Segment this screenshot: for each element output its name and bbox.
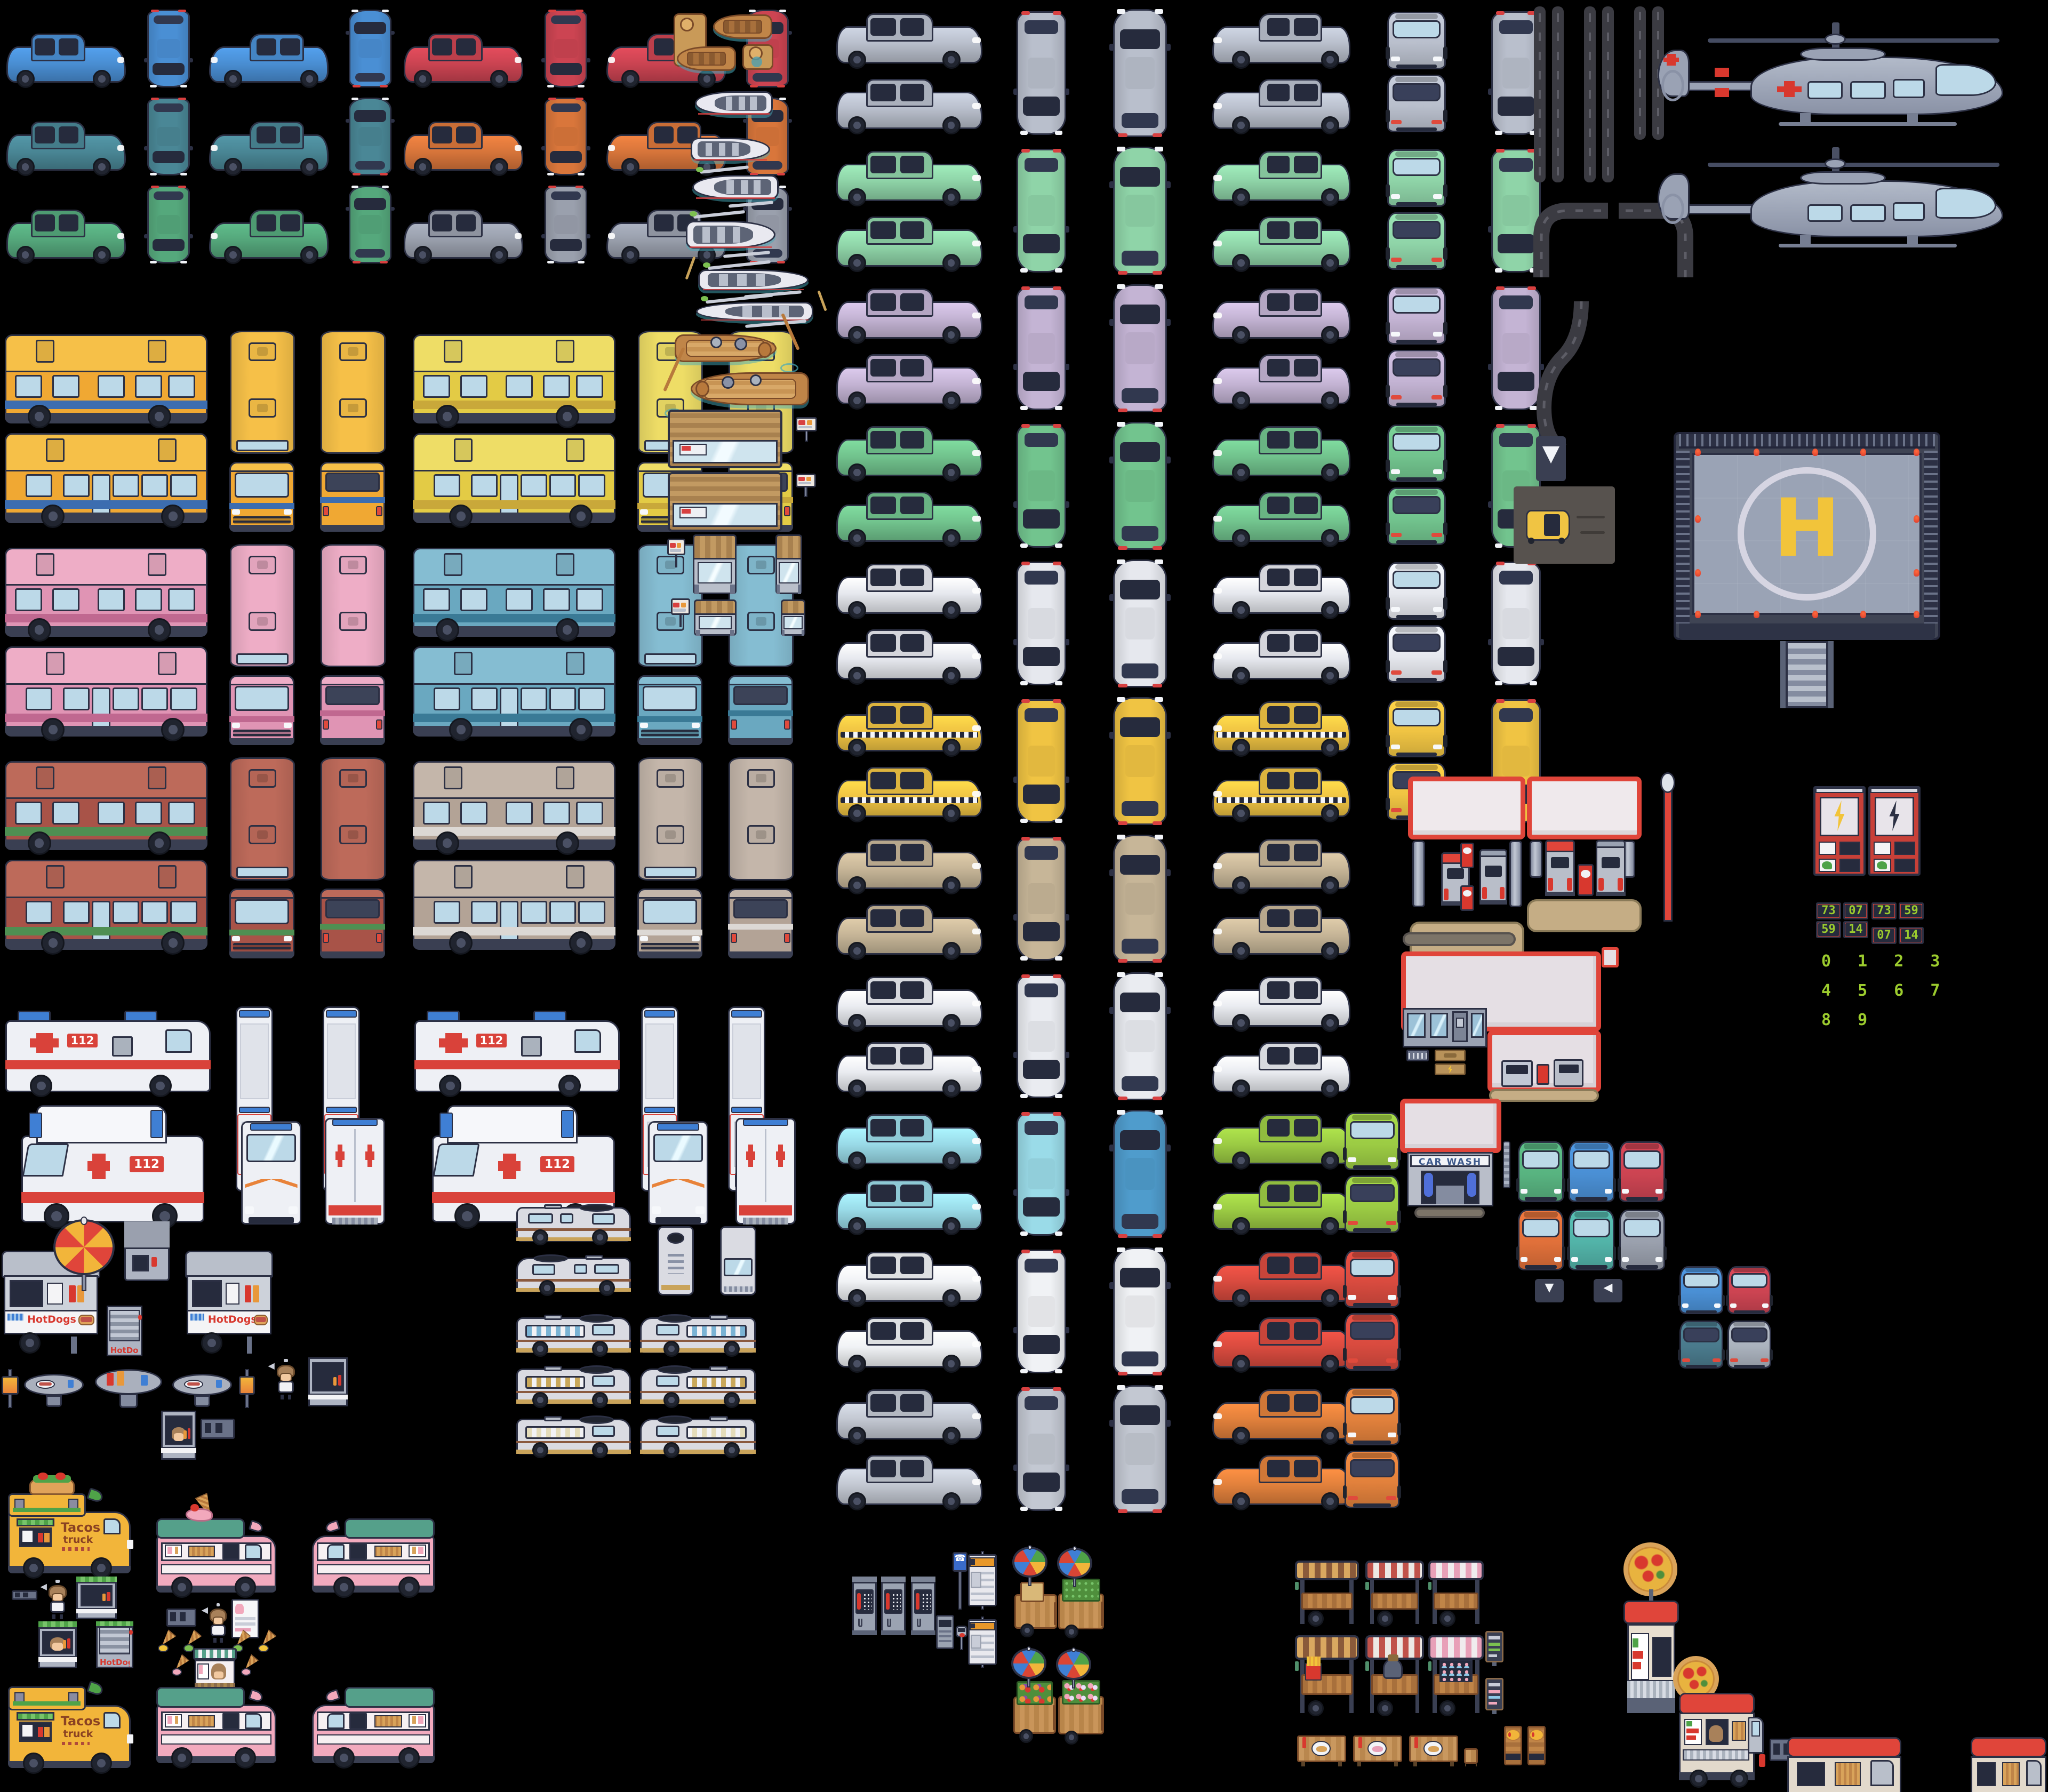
ambulance-front-1 <box>240 1119 302 1227</box>
bus-tan-top-rear <box>726 756 796 882</box>
market-umbrella-2 <box>1057 1548 1092 1587</box>
stand-lamp-2 <box>239 1369 255 1408</box>
ambulance-side-1: 112 <box>5 1005 211 1097</box>
car-white-iso-right-2 <box>1211 629 1352 684</box>
cone-yellow-2 <box>258 1631 277 1653</box>
ambulance-iso-1: 112 <box>21 1100 208 1228</box>
bus-blue-side-left <box>411 546 618 641</box>
door-mat-1 <box>1435 1050 1466 1061</box>
gas-canopy-2 <box>1527 777 1642 839</box>
car-white-iso-left-2 <box>835 629 984 684</box>
bus-brown-top-front <box>228 756 297 882</box>
bus-brown-side-left <box>3 759 210 854</box>
icecream-truck-right <box>309 1511 435 1597</box>
car-sport-red-top-a <box>1013 1247 1069 1376</box>
ambulance-112-text: 112 <box>67 1034 98 1047</box>
icecream-truck-right-2 <box>309 1680 435 1767</box>
car-green-back-top <box>1387 486 1446 546</box>
carwash-car-grid-cell-0-2 <box>1619 1140 1666 1203</box>
carwash-car-grid-cell-0-0 <box>1517 1140 1564 1203</box>
cone-yellow-1 <box>158 1631 177 1653</box>
white-boat-right <box>689 134 772 164</box>
carwash-car-grid-cell-0-1 <box>1568 1140 1615 1203</box>
cone-pink-2 <box>241 1655 259 1677</box>
taco-truck-text-line1: Tacos <box>61 1716 100 1727</box>
compact-car-teal-top-1 <box>144 96 193 177</box>
stall-tan-fries <box>1295 1635 1359 1716</box>
wood-raft-right <box>712 13 773 40</box>
car-sport-red-iso-right-2 <box>1211 1317 1352 1372</box>
compact-car-gray-top-1 <box>541 184 590 265</box>
car-silver-iso-left-1 <box>835 13 984 68</box>
arrow-icon: ▼ <box>1536 440 1566 466</box>
car-cyan-lime-iso-left-2 <box>835 1180 984 1234</box>
compact-car-gray-side-left <box>403 210 524 263</box>
car-mint-iso-left-1 <box>835 151 984 205</box>
taco-truck: Tacostruck <box>8 1488 133 1578</box>
compact-car-teal-top-2 <box>346 96 395 177</box>
price-panel-3: 73 <box>1871 902 1897 919</box>
cone-pink-1 <box>172 1655 190 1677</box>
door-mat-2 <box>1435 1063 1466 1075</box>
bus-stop-sign-2 <box>795 474 817 497</box>
arrow-icon: ◀ <box>1594 1281 1622 1294</box>
car-white-iso-right-1 <box>1211 564 1352 618</box>
grid-arrow-left: ◀ <box>1594 1279 1622 1302</box>
car-tan-iso-left-1 <box>835 839 984 893</box>
price-panel-1: 73 <box>1816 902 1841 919</box>
bus-school-orange-back <box>318 460 387 534</box>
bus-tan-side-right <box>411 858 618 954</box>
car-lavender-iso-right-1 <box>1211 289 1352 343</box>
car-silver-top-b <box>1109 6 1171 140</box>
carwash-car-grid-cell-1-1 <box>1568 1209 1615 1271</box>
hotdogs-shutter-text: HotDogs <box>110 1346 139 1355</box>
stall-pink-empty <box>1428 1561 1484 1627</box>
car-silver-orange-front-top <box>1344 1387 1400 1446</box>
car-sport-red-iso-left-2 <box>835 1317 984 1372</box>
menu-board-2 <box>1485 1678 1504 1714</box>
car-mint-top-a <box>1013 146 1069 275</box>
bus-shelter-side-1 <box>691 534 739 594</box>
icecream-truck-2 <box>156 1680 279 1767</box>
car-silver-iso-left-2 <box>835 79 984 133</box>
car-white-back-top <box>1387 624 1446 684</box>
carwash-car-grid-b-cell-1-0 <box>1679 1319 1724 1370</box>
car-tan-iso-right-1 <box>1211 839 1352 893</box>
bus-brown-front <box>228 887 296 961</box>
fuel-price-value: 73 <box>1816 904 1841 917</box>
notice-board-2 <box>968 1619 997 1665</box>
arrow-icon: ▼ <box>1535 1281 1564 1294</box>
bus-stop-sign-3 <box>667 539 686 567</box>
carwash-brush-strip <box>1503 1141 1510 1188</box>
bus-blue-front <box>636 674 704 747</box>
car-sport-red-iso-left-1 <box>835 1252 984 1306</box>
taco-vendor-walk: ◀ <box>42 1580 74 1619</box>
icecream-vendor-walk: ◀ <box>203 1603 234 1643</box>
car-green-front-top <box>1387 423 1446 483</box>
car-taxi-front-top <box>1387 699 1446 758</box>
stall-red-pot <box>1365 1635 1424 1716</box>
rv-plain-left <box>516 1203 631 1244</box>
gas-pillar-3 <box>1530 841 1542 878</box>
bus-shelter-front-1 <box>692 599 738 636</box>
wood-table-2 <box>1352 1735 1403 1766</box>
car-cyan-lime-top-b <box>1109 1107 1171 1241</box>
car-lavender-top-b <box>1109 282 1171 415</box>
car-lavender-top-a <box>1013 284 1069 413</box>
bus-yellow-side-left <box>411 332 618 427</box>
bistro-table-2 <box>92 1366 165 1408</box>
white-boat-oars-l <box>691 172 780 203</box>
helicopter-medical <box>1658 22 2014 135</box>
bus-pink-side-right <box>3 644 210 740</box>
car-on-road-tile <box>1514 486 1615 564</box>
hotdogs-banner-text: HotDogs <box>27 1314 76 1325</box>
track-straight-2 <box>1582 6 1616 182</box>
walk-arrow-icon: ◀ <box>202 1605 208 1615</box>
taco-truck-text-line1: Tacos <box>61 1522 100 1534</box>
fuel-pump-awning-2 <box>1595 840 1627 896</box>
car-mint-front-top <box>1387 148 1446 208</box>
pizza-food-truck <box>1677 1677 1765 1787</box>
bus-stop-sign-1 <box>795 417 818 442</box>
icecream-counter <box>166 1609 196 1627</box>
price-panel-8: 14 <box>1899 927 1924 944</box>
compact-car-red-top-1 <box>541 8 590 89</box>
pump-post-1 <box>1460 843 1474 868</box>
digit-glyphs-row-2: 4 5 6 7 <box>1821 981 1917 1004</box>
car-silver-orange-iso-right-2 <box>1211 1455 1352 1509</box>
compact-car-teal-side-right <box>208 122 330 175</box>
bus-tan-top-front <box>636 756 705 882</box>
wood-fishing-boat-r <box>670 332 781 365</box>
bistro-table-3 <box>170 1372 235 1407</box>
gas-pillar-1 <box>1412 841 1425 907</box>
car-mint-iso-left-2 <box>835 217 984 271</box>
dirt-pad <box>1403 932 1516 946</box>
stand-lamp-1 <box>2 1369 19 1408</box>
wood-table-small <box>1463 1748 1478 1766</box>
carwash-car-grid-b-cell-0-1 <box>1727 1265 1772 1315</box>
gas-storefront <box>1403 1008 1487 1047</box>
walk-arrow-icon: ◀ <box>41 1581 47 1591</box>
phone-booth-2 <box>881 1577 906 1635</box>
bus-school-orange-top-rear <box>318 330 388 455</box>
bus-brown-back <box>318 887 387 961</box>
car-tan-top-b <box>1109 832 1171 965</box>
bistro-table-1 <box>21 1372 86 1407</box>
helipad-stairs <box>1780 641 1834 708</box>
bus-shelter-top-2 <box>668 472 782 532</box>
car-green-iso-left-2 <box>835 492 984 546</box>
white-boat-oars-r <box>684 217 778 252</box>
bus-school-orange-side-right <box>3 431 210 527</box>
fuel-pump-gray <box>1478 849 1508 905</box>
mini-pizza-stand-2 <box>1526 1726 1547 1765</box>
price-panel-4: 59 <box>1899 902 1924 919</box>
wood-table-3 <box>1408 1735 1459 1766</box>
gas-pad-3 <box>1489 1089 1599 1102</box>
market-umbrella-1 <box>1012 1547 1047 1586</box>
rv-awning-cream-left <box>516 1414 631 1457</box>
stall-red-empty <box>1365 1561 1424 1627</box>
ticket-cabinet <box>936 1615 954 1649</box>
car-lavender-iso-right-2 <box>1211 354 1352 409</box>
car-mint-iso-right-2 <box>1211 217 1352 271</box>
pizza-stand <box>1621 1542 1681 1724</box>
car-sport-red-front-top <box>1344 1249 1400 1309</box>
bus-pink-front <box>228 674 296 747</box>
fuel-price-value: 07 <box>1843 904 1868 917</box>
bus-school-orange-front <box>228 460 296 534</box>
helicopter-gray <box>1658 147 2014 257</box>
market-umbrella-3 <box>1011 1648 1046 1687</box>
carwash-roof <box>1400 1099 1501 1153</box>
drain-grate <box>1406 1050 1429 1061</box>
car-silver-front-top <box>1387 11 1446 70</box>
compact-car-blue-top-2 <box>346 8 395 89</box>
car-silver-iso-right-1 <box>1211 13 1352 68</box>
market-cart-veggies <box>1058 1579 1104 1636</box>
bus-pink-side-left <box>3 546 210 641</box>
hotdog-kiosk-closed <box>124 1221 170 1281</box>
track-s-curve <box>1531 301 1595 451</box>
compact-car-green-side-left <box>5 210 127 263</box>
digit-glyphs-row-1: 0 1 2 3 <box>1821 952 1917 974</box>
car-silver-orange-back-top <box>1344 1450 1400 1509</box>
car-green-iso-right-1 <box>1211 426 1352 481</box>
car-green-top-a <box>1013 421 1069 550</box>
car-white-2-iso-right-2 <box>1211 1042 1352 1097</box>
price-panel-6: 14 <box>1843 921 1868 938</box>
taco-truck-2: Tacostruck <box>8 1681 133 1773</box>
bus-pink-top-rear <box>318 543 388 668</box>
helipad-h-marking: H <box>1674 482 1940 575</box>
ambulance-side-2: 112 <box>414 1005 620 1097</box>
price-board-dark <box>1868 786 1921 876</box>
car-taxi-iso-right-1 <box>1211 701 1352 756</box>
car-white-top-c <box>1488 559 1544 688</box>
car-mint-iso-right-1 <box>1211 151 1352 205</box>
ambulance-back-1 <box>324 1116 386 1227</box>
fuel-price-value: 07 <box>1871 929 1897 942</box>
hotdog-serving-window <box>308 1357 348 1406</box>
hotdog-cart-2: HotDogs <box>185 1234 273 1356</box>
hotdog-umbrella <box>53 1219 115 1291</box>
price-panel-5: 59 <box>1816 921 1841 938</box>
wood-raft-left <box>676 45 737 72</box>
compact-car-orange-side-left <box>403 122 524 175</box>
car-mint-top-b <box>1109 144 1171 277</box>
grid-arrow-down: ▼ <box>1535 1279 1564 1302</box>
car-silver-top-a <box>1013 9 1069 138</box>
car-silver-iso-right-2 <box>1211 79 1352 133</box>
compact-car-blue-top-1 <box>144 8 193 89</box>
pump-post-3 <box>1578 864 1594 896</box>
icecream-truck <box>156 1511 279 1597</box>
car-silver-back-top <box>1387 74 1446 133</box>
car-lavender-front-top <box>1387 286 1446 346</box>
white-boat-rods-r <box>696 267 811 293</box>
car-white-2-iso-left-2 <box>835 1042 984 1097</box>
roof-snippet <box>1602 947 1619 967</box>
compact-car-red-side-left <box>403 34 524 87</box>
car-taxi-iso-left-1 <box>835 701 984 756</box>
market-umbrella-4 <box>1056 1649 1091 1689</box>
car-taxi-top-a <box>1013 697 1069 826</box>
white-boat-rods-l <box>693 300 816 323</box>
compact-car-teal-side-left <box>5 122 127 175</box>
car-cyan-lime-iso-right-1 <box>1211 1114 1352 1169</box>
compact-car-blue-side-right <box>208 34 330 87</box>
ambulance-back-2 <box>734 1116 797 1227</box>
gas-canopy-1 <box>1408 777 1525 839</box>
compact-car-green-top-2 <box>346 184 395 265</box>
carwash-car-grid-cell-1-0 <box>1517 1209 1564 1271</box>
market-cart-empty <box>1014 1580 1057 1635</box>
fuel-pump-awning-1 <box>1544 840 1576 896</box>
car-silver-orange-iso-left-1 <box>835 1389 984 1444</box>
stall-tan-empty <box>1295 1561 1359 1627</box>
car-cyan-lime-iso-left-1 <box>835 1114 984 1169</box>
hotdog-counter <box>201 1419 235 1439</box>
hotdogs-banner-text: HotDogs <box>208 1314 257 1325</box>
digit-glyphs: 8 9 <box>1821 1011 1876 1029</box>
car-taxi-iso-left-2 <box>835 767 984 821</box>
taco-truck-text-line2: truck <box>63 1535 93 1545</box>
car-white-top-b <box>1109 557 1171 690</box>
car-silver-orange-top-a <box>1013 1385 1069 1514</box>
fuel-price-value: 59 <box>1899 904 1924 917</box>
hotdog-vendor-kiosk <box>161 1411 196 1460</box>
pump-post-2 <box>1460 885 1474 911</box>
rv-awning-blue-right <box>640 1313 756 1356</box>
car-white-top-a <box>1013 559 1069 688</box>
car-silver-orange-iso-left-2 <box>835 1455 984 1509</box>
bus-shelter-side-2 <box>774 534 803 594</box>
ambulance-112-text: 112 <box>540 1156 574 1172</box>
helipad: H <box>1674 432 1940 640</box>
taco-counter <box>12 1590 37 1600</box>
digit-glyphs-row-3: 8 9 <box>1821 1011 1875 1033</box>
spawn-arrow-tile: ▼ <box>1536 436 1566 481</box>
compact-car-orange-top-1 <box>541 96 590 177</box>
store-pump-row <box>1501 1058 1585 1088</box>
taco-truck-text-line2: truck <box>63 1730 93 1739</box>
car-cyan-lime-top-a <box>1013 1109 1069 1238</box>
car-tan-iso-left-2 <box>835 905 984 959</box>
bus-pink-top-front <box>228 543 297 668</box>
phone-booth-3 <box>911 1577 935 1635</box>
compact-car-blue-side-left <box>5 34 127 87</box>
bus-tan-side-left <box>411 759 618 854</box>
car-taxi-iso-right-2 <box>1211 767 1352 821</box>
car-mint-back-top <box>1387 211 1446 271</box>
car-lavender-back-top <box>1387 349 1446 409</box>
pizza-truck-partial-1 <box>1785 1732 1903 1792</box>
wood-fishing-boat-l <box>685 369 814 409</box>
ambulance-112-text: 112 <box>130 1156 164 1172</box>
car-tan-top-a <box>1013 834 1069 963</box>
hotdogs-shutter-text: HotDogs <box>100 1658 130 1667</box>
carwash-sign: CAR WASH <box>1407 1157 1493 1167</box>
gas-price-pole <box>1659 772 1677 922</box>
ambulance-112-text: 112 <box>476 1034 507 1047</box>
fuel-price-value: 73 <box>1871 904 1897 917</box>
car-white-2-iso-right-1 <box>1211 977 1352 1031</box>
bus-school-orange-side-left <box>3 332 210 427</box>
white-boat-left <box>693 88 774 118</box>
rv-awning-tan-right <box>640 1364 756 1407</box>
car-cyan-lime-back-top <box>1344 1174 1400 1234</box>
car-white-iso-left-1 <box>835 564 984 618</box>
carwash-car-grid-b-cell-1-1 <box>1727 1319 1772 1370</box>
taco-serving-window <box>76 1577 117 1619</box>
bus-brown-side-right <box>3 858 210 954</box>
phone-booth-1 <box>852 1577 877 1635</box>
hotdog-vendor-walk: ◀ <box>269 1359 302 1399</box>
notice-board-1 <box>968 1554 997 1606</box>
dock-corner-2 <box>742 44 773 70</box>
compact-car-green-top-1 <box>144 184 193 265</box>
car-sport-red-top-b <box>1109 1245 1171 1378</box>
taco-menu-window <box>38 1621 77 1668</box>
car-sport-red-back-top <box>1344 1312 1400 1372</box>
carwash-car-grid-b-cell-0-0 <box>1679 1265 1724 1315</box>
car-green-iso-left-1 <box>835 426 984 481</box>
bus-tan-front <box>636 887 704 961</box>
track-straight-1 <box>1532 6 1566 182</box>
bus-school-orange-top-front <box>228 330 297 455</box>
phone-sign-pole: ☎ <box>953 1552 967 1610</box>
carwash-car-grid-cell-1-2 <box>1619 1209 1666 1271</box>
price-panel-2: 07 <box>1843 902 1868 919</box>
car-cyan-lime-front-top <box>1344 1111 1400 1171</box>
stall-pink-donuts <box>1428 1635 1484 1716</box>
digit-glyphs: 0 1 2 3 <box>1821 952 1948 971</box>
bus-blue-back <box>726 674 795 747</box>
bus-brown-top-rear <box>318 756 388 882</box>
carwash-building: CAR WASH <box>1407 1152 1493 1206</box>
car-sport-red-iso-right-1 <box>1211 1252 1352 1306</box>
fuel-price-value: 14 <box>1899 929 1924 942</box>
car-tan-iso-right-2 <box>1211 905 1352 959</box>
menu-board-1 <box>1485 1631 1504 1666</box>
digit-glyphs: 4 5 6 7 <box>1821 981 1948 1000</box>
parking-meter <box>955 1626 969 1650</box>
car-green-iso-right-2 <box>1211 492 1352 546</box>
bus-tan-back <box>726 887 795 961</box>
fuel-price-value: 59 <box>1816 923 1841 936</box>
fuel-price-value: 14 <box>1843 923 1868 936</box>
bus-shelter-top-1 <box>668 410 782 468</box>
car-white-2-top-b <box>1109 970 1171 1103</box>
rv-awning-tan-left <box>516 1364 631 1407</box>
market-cart-flowers <box>1058 1680 1104 1742</box>
car-lavender-iso-left-1 <box>835 289 984 343</box>
car-white-2-iso-left-1 <box>835 977 984 1031</box>
car-green-top-b <box>1109 419 1171 553</box>
bus-yellow-side-right <box>411 431 618 527</box>
car-white-2-top-a <box>1013 972 1069 1101</box>
market-cart-fruits <box>1013 1681 1056 1741</box>
car-silver-orange-top-b <box>1109 1382 1171 1516</box>
vehicle-sprite-sheet: ▼H73077359591407140 1 2 34 5 6 78 9CAR W… <box>0 0 2048 1792</box>
bus-stop-sign-4 <box>670 598 691 627</box>
gas-pillar-2 <box>1509 841 1522 907</box>
